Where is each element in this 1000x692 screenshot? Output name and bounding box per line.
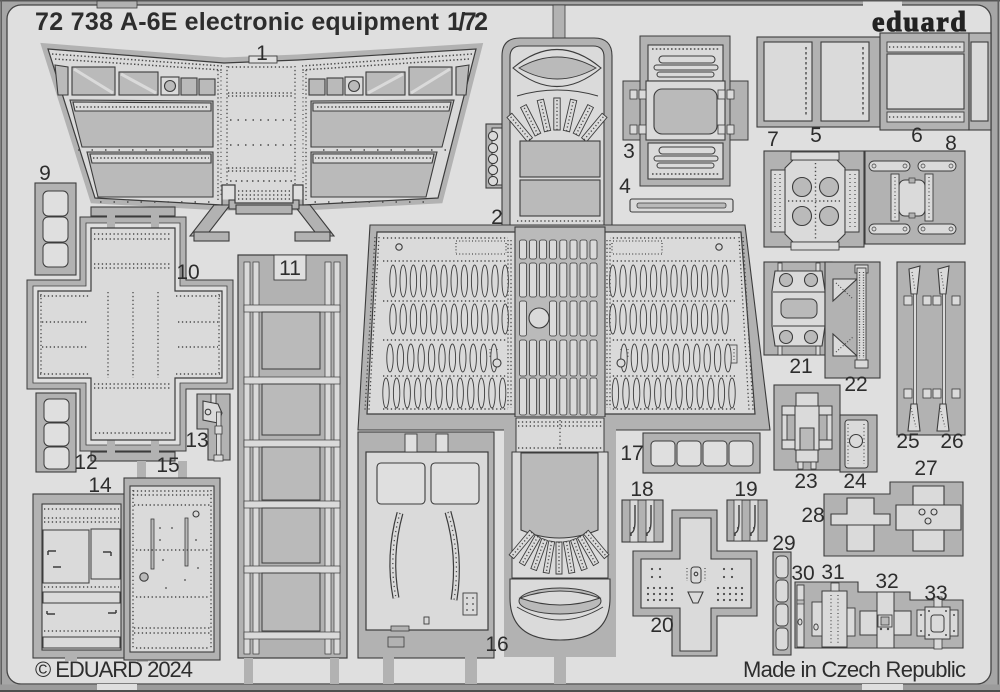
- svg-text:72 738: 72 738: [35, 8, 113, 36]
- svg-text:20: 20: [650, 614, 673, 637]
- svg-text:26: 26: [940, 430, 963, 453]
- svg-text:21: 21: [789, 355, 812, 378]
- svg-text:12: 12: [74, 451, 97, 474]
- svg-text:4: 4: [619, 175, 631, 198]
- svg-text:9: 9: [39, 162, 51, 185]
- svg-text:1: 1: [256, 42, 268, 65]
- svg-text:Made in Czech Republic: Made in Czech Republic: [743, 657, 966, 682]
- svg-text:7: 7: [767, 128, 779, 151]
- svg-text:1/72: 1/72: [447, 8, 488, 36]
- svg-text:3: 3: [623, 140, 635, 163]
- svg-text:14: 14: [88, 474, 112, 497]
- svg-text:32: 32: [875, 570, 898, 593]
- svg-text:10: 10: [176, 261, 199, 284]
- svg-text:A-6E electronic equipment: A-6E electronic equipment: [120, 8, 440, 36]
- svg-text:25: 25: [896, 430, 919, 453]
- svg-text:6: 6: [911, 124, 923, 147]
- svg-text:28: 28: [801, 504, 824, 527]
- svg-text:16: 16: [485, 633, 508, 656]
- svg-text:18: 18: [630, 478, 653, 501]
- svg-text:24: 24: [843, 470, 867, 493]
- svg-text:13: 13: [185, 429, 208, 452]
- svg-text:© EDUARD 2024: © EDUARD 2024: [35, 657, 193, 682]
- svg-text:19: 19: [734, 478, 757, 501]
- svg-text:29: 29: [772, 532, 795, 555]
- svg-text:15: 15: [156, 454, 179, 477]
- svg-text:31: 31: [821, 561, 844, 584]
- svg-text:17: 17: [620, 442, 643, 465]
- svg-text:27: 27: [914, 457, 937, 480]
- svg-text:5: 5: [810, 124, 822, 147]
- svg-text:33: 33: [924, 582, 947, 605]
- svg-text:22: 22: [844, 373, 867, 396]
- svg-text:11: 11: [279, 257, 301, 280]
- svg-text:30: 30: [791, 562, 814, 585]
- svg-text:23: 23: [794, 470, 817, 493]
